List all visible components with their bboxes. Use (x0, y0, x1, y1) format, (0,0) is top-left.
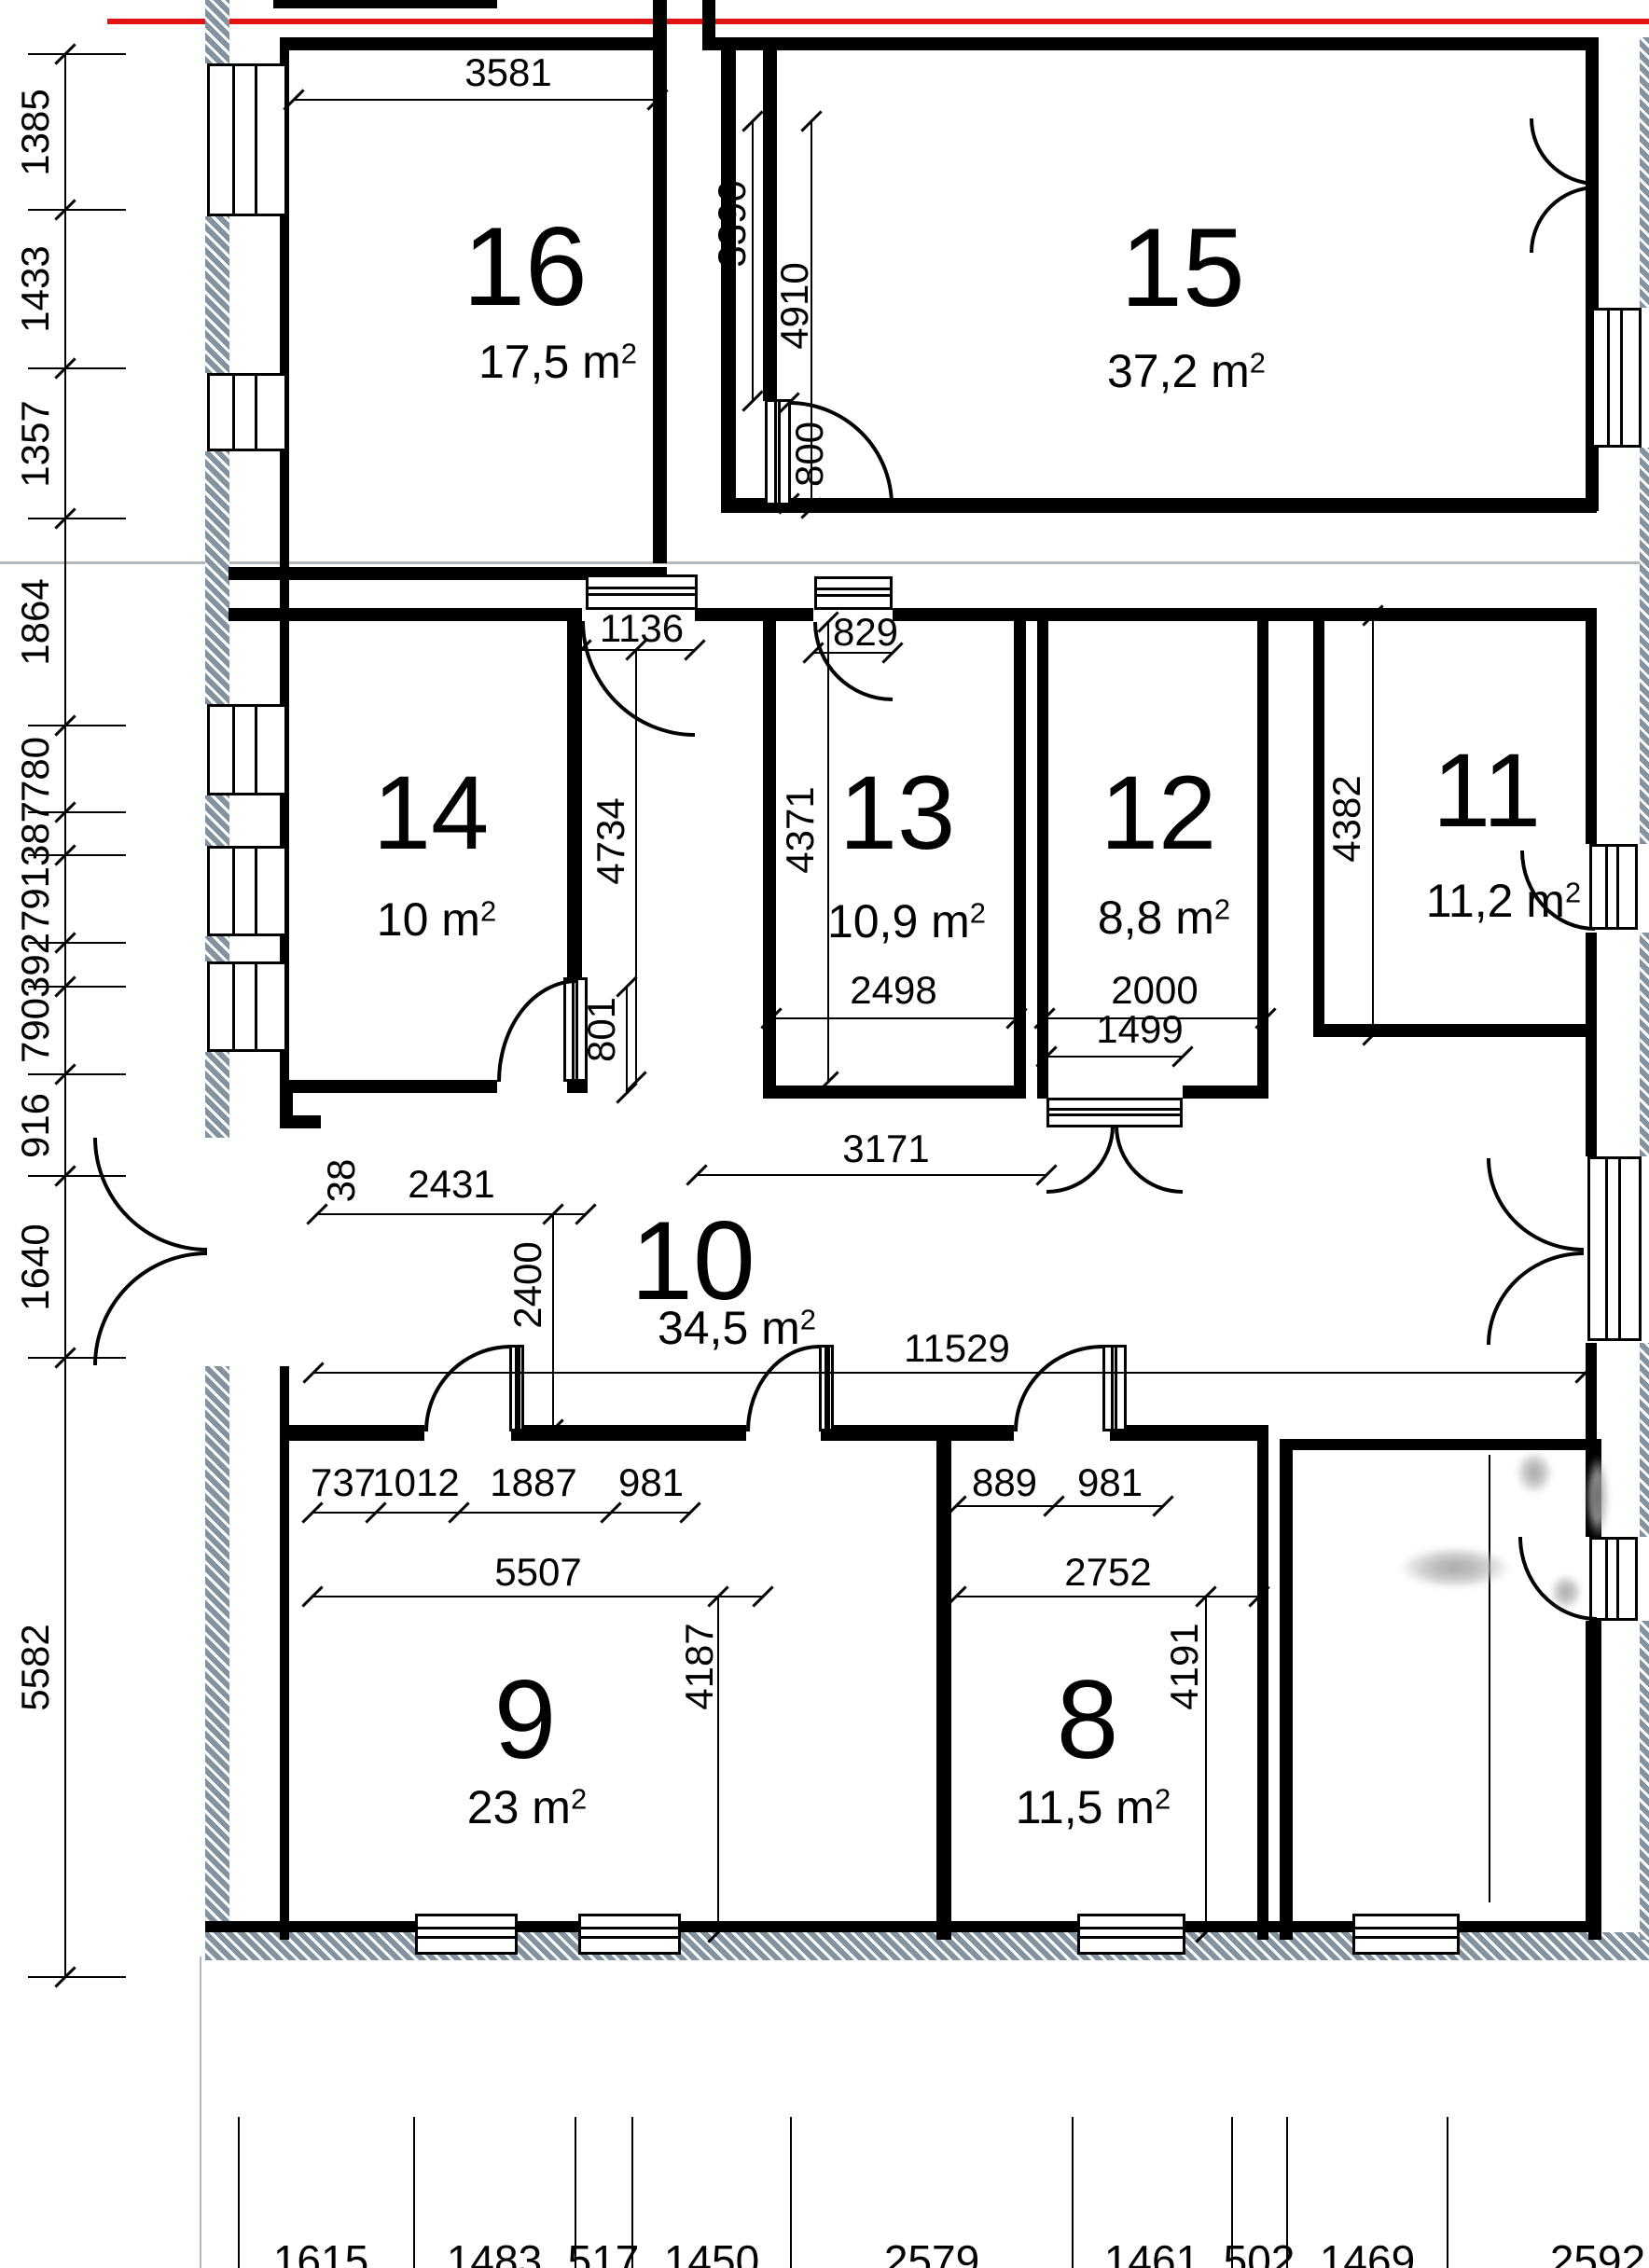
wall (1287, 1439, 1592, 1450)
wall (1183, 1086, 1268, 1099)
wall (280, 1080, 497, 1093)
room-area-label: 10,9 m2 (827, 898, 986, 945)
superscript-2: 2 (480, 895, 496, 928)
wall (1586, 608, 1597, 844)
wall (571, 1080, 588, 1093)
room-number-label: 16 (463, 211, 587, 323)
wall (653, 0, 667, 563)
dimension-label: 737 (311, 1463, 376, 1502)
room-area-label: 34,5 m2 (658, 1305, 816, 1351)
extension-line (28, 53, 126, 55)
window (1102, 1345, 1127, 1431)
section-line (0, 561, 1649, 564)
extension-line (1072, 2117, 1074, 2268)
door-swing-arc (1487, 1158, 1584, 1252)
window (207, 961, 287, 1052)
extension-line (28, 1175, 126, 1177)
window-inner-lines (1607, 308, 1622, 448)
erased-text-smudge (1399, 1546, 1511, 1589)
room-area-label: 17,5 m2 (478, 339, 637, 385)
dimension-label: 829 (833, 613, 898, 652)
dimension-label: 889 (972, 1463, 1037, 1502)
dimension-label: 517 (568, 2239, 640, 2268)
dimension-label: 1433 (16, 245, 55, 332)
erased-text-smudge (1516, 1451, 1553, 1494)
wall (1313, 608, 1324, 1037)
window-inner-lines (578, 1927, 681, 1939)
room-number-label: 10 (630, 1205, 755, 1317)
dimension-label: 4371 (781, 786, 820, 873)
window (586, 574, 698, 610)
wall (1586, 933, 1597, 1037)
window (207, 373, 287, 451)
window (578, 1914, 681, 1955)
wall (280, 1115, 321, 1128)
dimension-line (312, 1596, 763, 1597)
wall (283, 37, 667, 50)
wall (280, 1366, 289, 1940)
wall (273, 0, 497, 8)
extension-line (28, 209, 126, 211)
window-inner-lines (1046, 1108, 1183, 1116)
window (814, 576, 893, 610)
wall (1588, 1621, 1601, 1940)
window (1077, 1914, 1185, 1955)
dimension-label: 2431 (408, 1165, 494, 1204)
window-inner-lines (774, 399, 781, 505)
wall (1257, 1425, 1268, 1940)
exterior-wall-hatch (1640, 448, 1649, 844)
dimension-line (1046, 1056, 1183, 1058)
door-swing-arc (93, 1138, 207, 1252)
wall (893, 608, 1597, 621)
wall (936, 1425, 951, 1940)
window-inner-lines (415, 1927, 518, 1939)
window (207, 63, 287, 216)
window (1587, 1156, 1642, 1341)
dimension-label: 4382 (1327, 775, 1366, 862)
dimension-label: 3171 (842, 1129, 929, 1169)
door-swing-arc (1487, 1252, 1584, 1345)
dimension-line (317, 1213, 586, 1215)
dimension-label: 387 (16, 801, 55, 866)
dimension-label: 4734 (591, 797, 630, 884)
dimension-label: 5582 (16, 1624, 55, 1710)
dimension-label: 3581 (464, 53, 551, 92)
dimension-line (1372, 615, 1374, 1035)
window-inner-lines (1077, 1927, 1185, 1939)
room-number-label: 15 (1120, 212, 1244, 324)
extension-line (28, 1073, 126, 1075)
dimension-label: 1615 (273, 2239, 368, 2268)
wall (280, 1425, 424, 1441)
exterior-wall-hatch (1640, 1621, 1649, 1940)
dimension-line (697, 1174, 1046, 1176)
dimension-label: 981 (1077, 1463, 1143, 1502)
dimension-label: 800 (790, 422, 829, 487)
extension-line (28, 367, 126, 369)
wall (1014, 608, 1026, 1099)
dimension-label: 790 (16, 998, 55, 1063)
room-area-label: 10 m2 (377, 896, 496, 943)
erased-text-smudge (1550, 1574, 1582, 1610)
room-area-label: 8,8 m2 (1098, 894, 1230, 941)
window (1591, 308, 1642, 448)
exterior-wall-hatch (1640, 933, 1649, 1156)
dimension-line (626, 987, 628, 1093)
wall (702, 37, 1597, 50)
wall (948, 1425, 1014, 1441)
dimension-line (956, 1596, 1259, 1597)
dimension-label: 2498 (850, 971, 936, 1010)
dimension-label: 1357 (16, 400, 55, 487)
dimension-line (313, 1372, 1586, 1374)
door-swing-arc (424, 1345, 511, 1431)
door-swing-arc (93, 1252, 207, 1365)
dimension-line (552, 1214, 554, 1430)
extension-line (1489, 1455, 1490, 1902)
exterior-wall-hatch (205, 1052, 229, 1138)
dimension-label: 780 (16, 737, 55, 802)
superscript-2: 2 (970, 897, 986, 930)
window-inner-lines (232, 961, 257, 1052)
floor-plan-canvas: 3581339049108001617,5 m21537,2 m21136829… (0, 0, 1649, 2268)
dimension-label: 502 (1224, 2239, 1296, 2268)
door-swing-arc (1115, 1126, 1183, 1194)
window (207, 704, 287, 795)
extension-line (238, 2117, 240, 2268)
window (1046, 1098, 1183, 1127)
room-area-label: 23 m2 (467, 1784, 587, 1831)
door-swing-arc (1014, 1345, 1102, 1431)
superscript-2: 2 (1250, 347, 1266, 380)
superscript-2: 2 (1155, 1783, 1171, 1816)
window-inner-lines (814, 588, 893, 597)
erased-text-smudge (1586, 1455, 1610, 1539)
wall (1313, 1024, 1597, 1037)
dimension-label: 1450 (664, 2239, 759, 2268)
dimension-label: 3390 (713, 180, 752, 267)
room-number-label: 12 (1101, 761, 1217, 865)
superscript-2: 2 (1214, 893, 1230, 926)
dimension-label: 916 (16, 1093, 55, 1158)
exterior-wall-hatch (205, 936, 229, 961)
window-inner-lines (1605, 844, 1620, 930)
dimension-line (827, 622, 829, 1082)
section-line (200, 1957, 201, 2268)
door-swing-arc (746, 1345, 819, 1431)
window (1589, 844, 1638, 930)
wall (763, 1086, 1026, 1099)
dimension-label: 1499 (1096, 1010, 1183, 1049)
door-swing-arc (1530, 186, 1597, 253)
door-swing-arc (497, 979, 577, 1082)
window (207, 846, 287, 936)
dimension-label: 38 (322, 1159, 361, 1203)
window (1352, 1914, 1460, 1955)
wall (821, 1425, 948, 1441)
extension-line (413, 2117, 415, 2268)
superscript-2: 2 (621, 338, 637, 370)
exterior-wall-hatch (205, 451, 229, 704)
dimension-line (294, 99, 658, 101)
superscript-2: 2 (800, 1304, 816, 1336)
window (819, 1345, 834, 1431)
window-inner-lines (824, 1345, 830, 1431)
window (415, 1914, 518, 1955)
dimension-label: 1483 (447, 2239, 542, 2268)
window-inner-lines (586, 587, 698, 597)
dimension-label: 2000 (1111, 971, 1198, 1010)
extension-line (28, 1357, 126, 1359)
dimension-line (64, 54, 66, 1977)
room-area-label: 37,2 m2 (1107, 348, 1266, 394)
dimension-label: 1640 (16, 1224, 55, 1310)
exterior-wall-hatch (205, 216, 229, 373)
room-number-label: 8 (1057, 1664, 1119, 1776)
dimension-label: 2592 (1550, 2239, 1645, 2268)
extension-line (28, 725, 126, 726)
window (509, 1345, 524, 1431)
window-inner-lines (1111, 1345, 1117, 1431)
window-inner-lines (232, 63, 257, 216)
window-inner-lines (1605, 1537, 1620, 1621)
extension-line (28, 1976, 126, 1978)
dimension-label: 2579 (884, 2239, 979, 2268)
room-number-label: 9 (494, 1664, 557, 1776)
red-marker-line (107, 19, 1649, 24)
dimension-label: 2752 (1064, 1553, 1151, 1592)
dimension-label: 392 (16, 933, 55, 998)
dimension-label: 1385 (16, 89, 55, 175)
extension-line (1447, 2117, 1448, 2268)
wall (1110, 1425, 1268, 1441)
dimension-label: 1136 (600, 609, 684, 648)
dimension-label: 791 (16, 866, 55, 932)
room-number-label: 11 (1433, 739, 1541, 843)
wall (1037, 1086, 1046, 1099)
window-inner-lines (515, 1345, 520, 1431)
extension-line (28, 518, 126, 519)
extension-line (790, 2117, 792, 2268)
wall (695, 608, 813, 621)
dimension-label: 11529 (904, 1329, 1010, 1368)
dimension-label: 4191 (1165, 1623, 1204, 1709)
dimension-label: 1461 (1104, 2239, 1199, 2268)
room-area-label: 11,2 m2 (1426, 878, 1581, 924)
dimension-label: 4910 (775, 262, 814, 349)
superscript-2: 2 (571, 1783, 587, 1816)
dimension-label: 5507 (494, 1553, 581, 1592)
window-inner-lines (1352, 1927, 1460, 1939)
window-inner-lines (232, 373, 257, 451)
window-inner-lines (232, 846, 257, 936)
room-number-label: 14 (373, 761, 490, 865)
wall (721, 37, 736, 513)
exterior-wall-hatch (1640, 1343, 1649, 1537)
dimension-line (956, 1505, 1163, 1507)
dimension-line (635, 650, 637, 1082)
wall (1280, 1439, 1293, 1940)
dimension-label: 2400 (508, 1241, 547, 1328)
dimension-label: 1012 (372, 1463, 459, 1502)
dimension-label: 1887 (490, 1463, 576, 1502)
door-swing-arc (1046, 1126, 1115, 1194)
superscript-2: 2 (1565, 877, 1581, 909)
exterior-wall-hatch (205, 795, 229, 846)
exterior-wall-hatch (1640, 37, 1649, 308)
exterior-wall-hatch (205, 1366, 229, 1940)
exterior-wall-hatch (205, 0, 229, 63)
dimension-label: 1469 (1320, 2239, 1415, 2268)
window-inner-lines (1605, 1156, 1622, 1341)
dimension-line (771, 1017, 1017, 1019)
dimension-label: 1864 (16, 578, 55, 665)
dimension-label: 981 (618, 1463, 684, 1502)
window-inner-lines (232, 704, 257, 795)
wall (1586, 1037, 1597, 1156)
room-number-label: 13 (839, 761, 956, 865)
dimension-label: 4187 (680, 1623, 719, 1709)
room-area-label: 11,5 m2 (1016, 1784, 1171, 1831)
door-swing-arc (1530, 118, 1597, 186)
dimension-label: 801 (582, 997, 621, 1062)
dimension-line (312, 1512, 690, 1514)
